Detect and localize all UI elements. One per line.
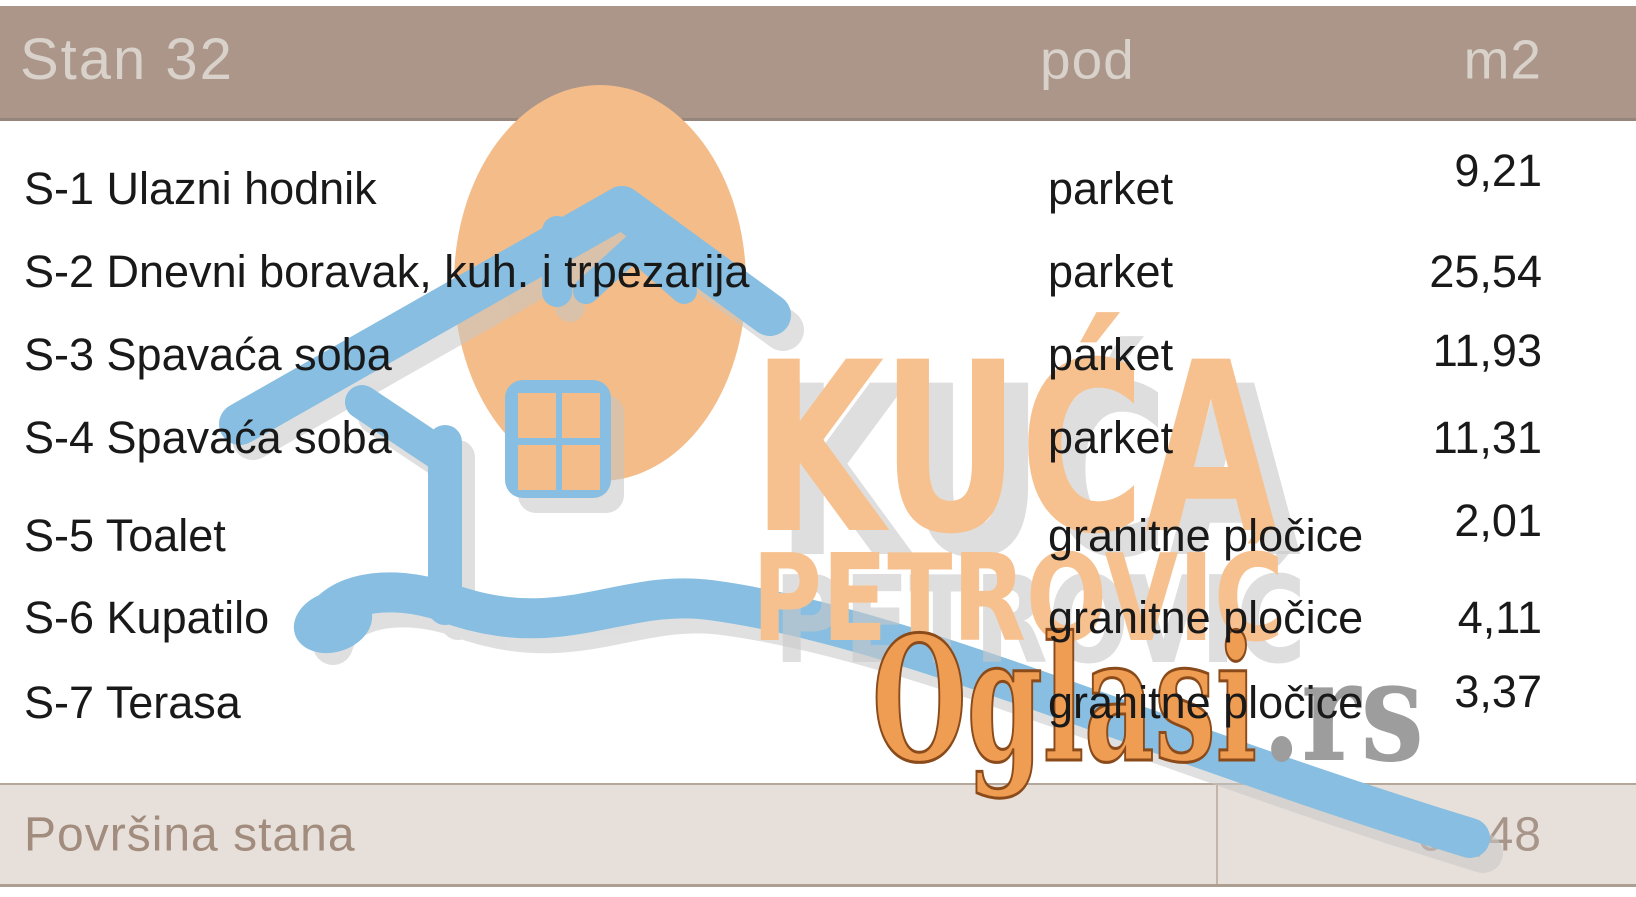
room-name: S-2 Dnevni boravak, kuh. i trpezarija <box>24 246 749 298</box>
room-table: S-1 Ulazni hodnik parket 9,21 S-2 Dnevni… <box>0 0 1636 897</box>
listing-image: Stan 32 pod m2 <box>0 0 1636 897</box>
room-name: S-6 Kupatilo <box>24 592 269 644</box>
area-value: 2,01 <box>1282 495 1542 547</box>
table-row: S-7 Terasa granitne pločice 3,37 <box>0 677 1636 731</box>
area-value: 11,31 <box>1282 412 1542 464</box>
area-value: 11,93 <box>1282 325 1542 377</box>
area-value: 4,11 <box>1282 592 1542 644</box>
floor-type: parket <box>1048 163 1173 215</box>
table-row: S-4 Spavaća soba parket 11,31 <box>0 412 1636 466</box>
table-row: S-5 Toalet granitne pločice 2,01 <box>0 510 1636 564</box>
table-row: S-1 Ulazni hodnik parket 9,21 <box>0 163 1636 217</box>
room-name: S-1 Ulazni hodnik <box>24 163 377 215</box>
area-value: 9,21 <box>1282 145 1542 197</box>
floor-type: parket <box>1048 246 1173 298</box>
floor-type: parket <box>1048 412 1173 464</box>
table-row: S-2 Dnevni boravak, kuh. i trpezarija pa… <box>0 246 1636 300</box>
area-value: 25,54 <box>1282 246 1542 298</box>
table-row: S-6 Kupatilo granitne pločice 4,11 <box>0 592 1636 646</box>
room-name: S-7 Terasa <box>24 677 241 729</box>
floor-type: parket <box>1048 329 1173 381</box>
room-name: S-3 Spavaća soba <box>24 329 392 381</box>
area-value: 3,37 <box>1282 666 1542 718</box>
room-name: S-4 Spavaća soba <box>24 412 392 464</box>
room-name: S-5 Toalet <box>24 510 226 562</box>
table-row: S-3 Spavaća soba parket 11,93 <box>0 329 1636 383</box>
